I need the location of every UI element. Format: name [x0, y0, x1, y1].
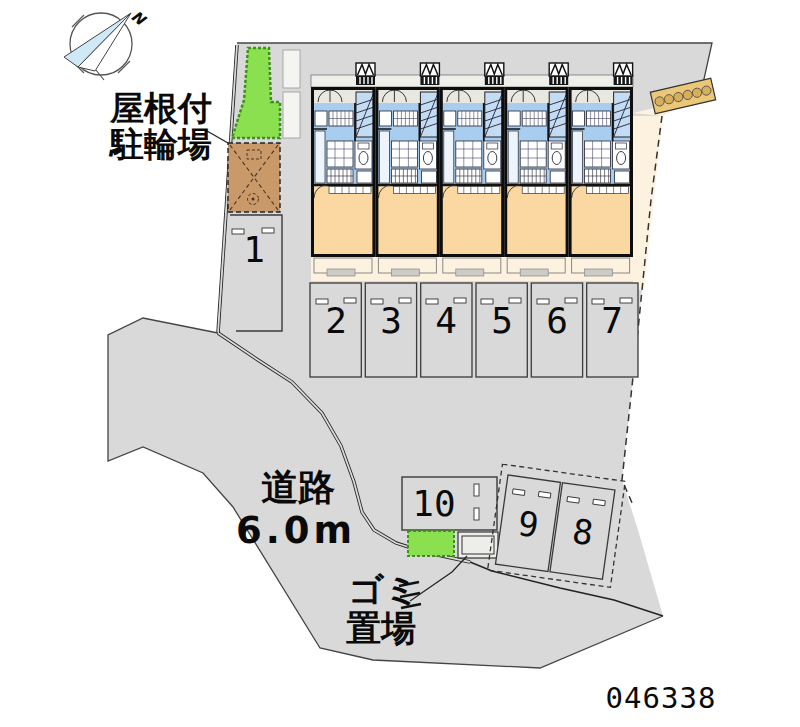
stall-number: 2 [325, 300, 347, 341]
garbage-planting [408, 531, 454, 556]
parking-stall-3: 3 [365, 283, 416, 377]
building [311, 63, 633, 276]
stall-number: 1 [243, 229, 265, 270]
garbage-label-line2: 置場 [346, 608, 416, 648]
compass-north-label: N [128, 7, 150, 30]
stall-number: 10 [412, 483, 455, 524]
road-width-label: 6.0m [236, 509, 356, 552]
stall-number: 5 [491, 300, 513, 341]
parking-stall-2: 2 [310, 283, 361, 377]
unit-5 [570, 63, 633, 276]
covered-bicycle-parking-area [228, 143, 280, 212]
bicycle-parking-label-line1: 屋根付 [109, 88, 212, 128]
road-label: 道路 [261, 466, 335, 509]
drawing-id: 046338 [606, 681, 717, 715]
parking-stall-7: 7 [587, 283, 638, 377]
unit-1 [313, 63, 376, 276]
unit-3 [441, 63, 504, 276]
parking-stall-4: 4 [421, 283, 472, 377]
site-plan-drawing: 1 2 3 4 5 [0, 0, 800, 727]
parking-stall-6: 6 [531, 283, 582, 377]
garbage-label-line1: ゴミ [348, 570, 420, 610]
stall-number: 7 [601, 300, 623, 341]
parking-stall-10: 10 [402, 477, 497, 530]
parking-stall-5: 5 [476, 283, 527, 377]
bicycle-parking-label-line2: 駐輪場 [108, 124, 212, 164]
stall-number: 6 [546, 300, 568, 341]
garbage-station [408, 531, 498, 558]
stall-number: 3 [380, 300, 402, 341]
site-plan-page: 1 2 3 4 5 [0, 0, 800, 727]
stall-number: 4 [435, 300, 457, 341]
unit-2 [377, 63, 440, 276]
unit-4 [506, 63, 569, 276]
compass-north-arrow: N [64, 7, 150, 80]
